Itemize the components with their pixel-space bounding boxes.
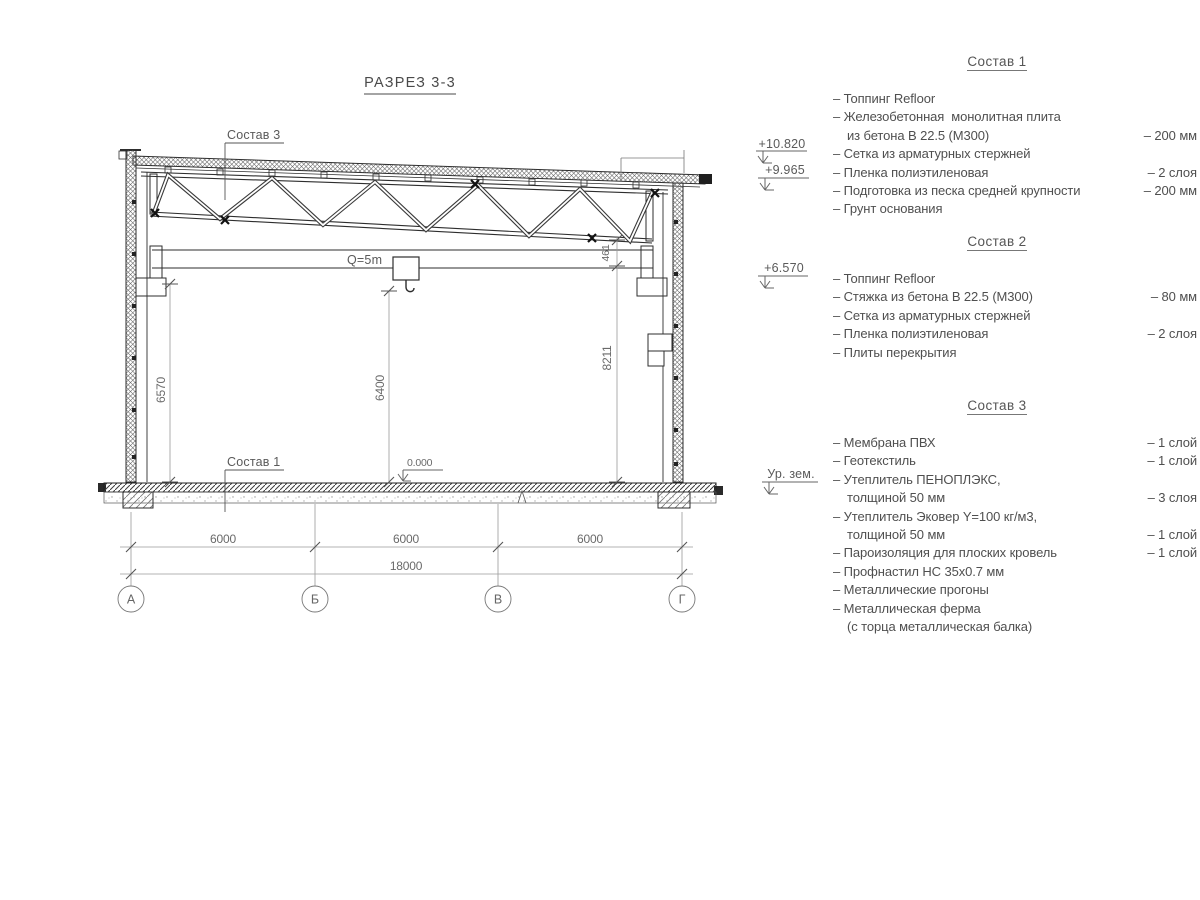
spec-item-text: – Стяжка из бетона В 22.5 (М300) (833, 288, 1033, 306)
spec-item-text: (с торца металлическая балка) (847, 618, 1032, 636)
spec-item-value: – 2 слоя (1148, 325, 1197, 343)
spec-item-text: – Топпинг Refloor (833, 270, 935, 288)
spec-item: (с торца металлическая балка) (833, 618, 1197, 636)
elevation-mark-roof-low: +9.965 (758, 163, 809, 190)
spec-item-text: – Пароизоляция для плоских кровель (833, 544, 1057, 562)
spec-item: – Пленка полиэтиленовая– 2 слоя (833, 164, 1197, 182)
spec-item-text: – Пленка полиэтиленовая (833, 164, 988, 182)
callout-floor-label: Состав 1 (227, 455, 280, 469)
axis-a-label: А (127, 593, 136, 607)
elevation-roof-low-text: +9.965 (765, 163, 805, 177)
spec-item-value: – 1 слой (1147, 526, 1197, 544)
spec-item: – Металлические прогоны (833, 581, 1197, 599)
elevation-crane-text: +6.570 (764, 261, 804, 275)
axis-bubbles: А Б В Г (118, 586, 695, 612)
spec-item: – Подготовка из песка средней крупности–… (833, 182, 1197, 200)
spec-item-text: – Сетка из арматурных стержней (833, 307, 1030, 325)
spec-item-value: – 80 мм (1151, 288, 1197, 306)
dim-span1-text: 6000 (210, 532, 236, 546)
spec-item-value: – 1 слой (1147, 434, 1197, 452)
spec-item-text: – Топпинг Refloor (833, 90, 935, 108)
spec-item-text: толщиной 50 мм (847, 489, 945, 507)
spec-list-1: Состав 1 – Топпинг Refloor– Железобетонн… (833, 54, 1197, 219)
spec-heading-2: Состав 2 (815, 234, 1179, 249)
spec-item-value: – 2 слоя (1148, 164, 1197, 182)
spec-item-value: – 200 мм (1144, 182, 1197, 200)
spec-item: – Сетка из арматурных стержней (833, 307, 1197, 325)
section-drawing: РАЗРЕЗ 3-3 (0, 0, 830, 660)
spec-item-text: – Плиты перекрытия (833, 344, 956, 362)
spec-item-text: – Профнастил НС 35х0.7 мм (833, 563, 1004, 581)
spec-item: толщиной 50 мм– 1 слой (833, 526, 1197, 544)
spec-item-text: – Сетка из арматурных стержней (833, 145, 1030, 163)
spec-item-value: – 200 мм (1144, 127, 1197, 145)
crane-capacity-label: Q=5m (347, 253, 382, 267)
spec-item: – Утеплитель ПЕНОПЛЭКС, (833, 471, 1197, 489)
spec-item-text: – Металлическая ферма (833, 600, 981, 618)
spec-item: – Пароизоляция для плоских кровель– 1 сл… (833, 544, 1197, 562)
spec-item-text: – Грунт основания (833, 200, 942, 218)
dim-hook-height-text: 6400 (373, 375, 387, 401)
crane-hook (406, 280, 414, 292)
dim-truss-offset-text: 461 (600, 244, 612, 261)
elevation-mark-crane: +6.570 (758, 261, 808, 288)
dim-right-clear-text: 8211 (600, 345, 614, 371)
left-wall (119, 150, 147, 482)
spec-item: – Грунт основания (833, 200, 1197, 218)
spec-item: – Геотекстиль– 1 слой (833, 452, 1197, 470)
axis-b-label: Б (311, 593, 319, 607)
spec-item: – Сетка из арматурных стержней (833, 145, 1197, 163)
spec-item-text: – Утеплитель Эковер Y=100 кг/м3, (833, 508, 1037, 526)
blueprint-canvas: РАЗРЕЗ 3-3 (0, 0, 1200, 900)
spec-item-text: – Геотекстиль (833, 452, 916, 470)
spec-item: – Металлическая ферма (833, 600, 1197, 618)
elevation-ground-text: Ур. зем. (767, 467, 815, 481)
spec-item: – Профнастил НС 35х0.7 мм (833, 563, 1197, 581)
bridge-crane: Q=5m (136, 246, 667, 296)
spec-heading-3: Состав 3 (815, 398, 1179, 413)
roof-edge-cap (699, 174, 712, 184)
spec-item: толщиной 50 мм– 3 слоя (833, 489, 1197, 507)
spec-item-text: – Пленка полиэтиленовая (833, 325, 988, 343)
axis-bubble-g: Г (669, 586, 695, 612)
spec-item-text: – Подготовка из песка средней крупности (833, 182, 1080, 200)
zero-level-mark: 0.000 (398, 457, 443, 481)
dim-right-clear: 461 8211 (600, 235, 625, 487)
spec-item: из бетона В 22.5 (М300)– 200 мм (833, 127, 1197, 145)
spec-item: – Плиты перекрытия (833, 344, 1197, 362)
spec-item-value: – 1 слой (1147, 544, 1197, 562)
spec-item-value: – 1 слой (1147, 452, 1197, 470)
spec-item-text: из бетона В 22.5 (М300) (847, 127, 989, 145)
axis-bubble-a: А (118, 586, 144, 612)
spec-list-2: Состав 2 – Топпинг Refloor– Стяжка из бе… (833, 234, 1197, 362)
dim-left-height-text: 6570 (154, 377, 168, 403)
dim-total-text: 18000 (390, 559, 423, 573)
crane-console-right (637, 278, 667, 296)
dim-span3-text: 6000 (577, 532, 603, 546)
spec-list-3: Состав 3 – Мембрана ПВХ– 1 слой– Геотекс… (833, 398, 1197, 636)
spec-item: – Пленка полиэтиленовая– 2 слоя (833, 325, 1197, 343)
crane-console-left (136, 278, 166, 296)
axis-g-label: Г (679, 593, 686, 607)
spec-item-text: – Металлические прогоны (833, 581, 989, 599)
axis-v-label: В (494, 593, 502, 607)
spec-items-1: – Топпинг Refloor– Железобетонная моноли… (833, 90, 1197, 219)
elevation-mark-ground: Ур. зем. (762, 467, 818, 494)
spec-item-value: – 3 слоя (1148, 489, 1197, 507)
spec-item-text: – Железобетонная монолитная плита (833, 108, 1061, 126)
foundation-block-left (123, 492, 153, 508)
spec-item-text: – Утеплитель ПЕНОПЛЭКС, (833, 471, 1000, 489)
zero-level-text: 0.000 (407, 457, 433, 469)
dim-span2-text: 6000 (393, 532, 419, 546)
spec-item-text: – Мембрана ПВХ (833, 434, 935, 452)
callout-roof-label: Состав 3 (227, 128, 280, 142)
elevation-roof-high-text: +10.820 (759, 137, 806, 151)
floor-slab (98, 483, 723, 508)
spec-item: – Стяжка из бетона В 22.5 (М300)– 80 мм (833, 288, 1197, 306)
axis-bubble-v: В (485, 586, 511, 612)
spec-item: – Мембрана ПВХ– 1 слой (833, 434, 1197, 452)
crane-trolley (393, 257, 419, 280)
axis-bubble-b: Б (302, 586, 328, 612)
foundation-block-right (658, 492, 690, 508)
spec-items-2: – Топпинг Refloor– Стяжка из бетона В 22… (833, 270, 1197, 362)
wall-bracket (648, 334, 672, 351)
dim-left-height: 6570 (154, 279, 178, 487)
drawing-title-text: РАЗРЕЗ 3-3 (364, 75, 456, 91)
roof-assembly (133, 156, 712, 187)
spec-item: – Утеплитель Эковер Y=100 кг/м3, (833, 508, 1197, 526)
spec-items-3: – Мембрана ПВХ– 1 слой– Геотекстиль– 1 с… (833, 434, 1197, 636)
elevation-mark-roof-high: +10.820 (756, 137, 807, 163)
bottom-dimensions: 6000 6000 6000 18000 (120, 504, 693, 586)
spec-item: – Топпинг Refloor (833, 270, 1197, 288)
spec-item: – Железобетонная монолитная плита (833, 108, 1197, 126)
drawing-title: РАЗРЕЗ 3-3 (364, 75, 456, 94)
spec-item-text: толщиной 50 мм (847, 526, 945, 544)
spec-item: – Топпинг Refloor (833, 90, 1197, 108)
spec-heading-1: Состав 1 (815, 54, 1179, 69)
dim-hook-height: 6400 (373, 286, 397, 487)
